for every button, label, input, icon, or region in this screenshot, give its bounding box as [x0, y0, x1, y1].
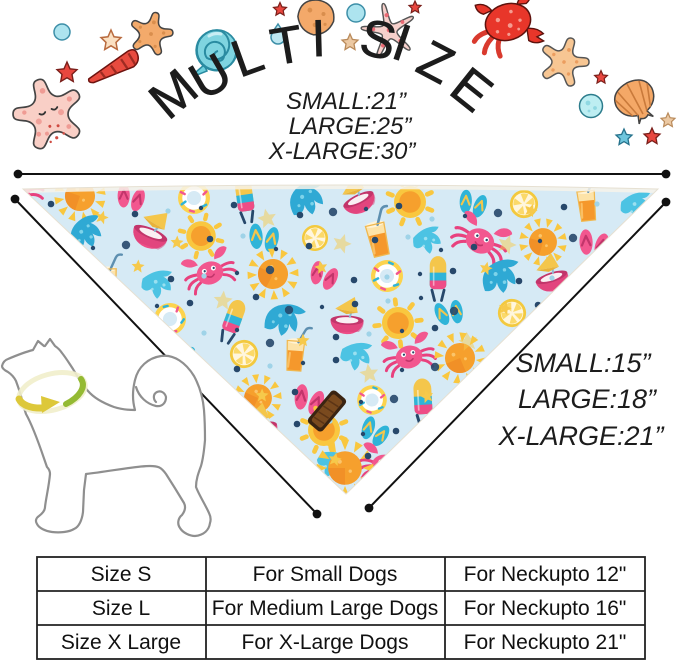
svg-text:Size S: Size S [91, 563, 152, 586]
svg-text:For Small Dogs: For Small Dogs [253, 563, 398, 586]
svg-text:Size X Large: Size X Large [61, 631, 181, 654]
svg-text:For Neckupto 16": For Neckupto 16" [464, 597, 627, 620]
svg-text:Size L: Size L [92, 597, 150, 620]
svg-text:X-LARGE:21”: X-LARGE:21” [497, 421, 664, 451]
svg-text:SMALL:21”: SMALL:21” [286, 88, 407, 115]
svg-text:I: I [311, 10, 327, 68]
svg-text:For X-Large Dogs: For X-Large Dogs [242, 631, 409, 654]
svg-text:For Neckupto 21": For Neckupto 21" [464, 631, 627, 654]
svg-text:LARGE:18”: LARGE:18” [518, 384, 657, 414]
svg-text:LARGE:25”: LARGE:25” [289, 113, 413, 140]
svg-text:For Neckupto 12": For Neckupto 12" [464, 563, 627, 586]
svg-text:X-LARGE:30”: X-LARGE:30” [268, 138, 417, 165]
svg-text:For Medium Large Dogs: For Medium Large Dogs [212, 597, 438, 620]
svg-text:SMALL:15”: SMALL:15” [515, 348, 651, 378]
